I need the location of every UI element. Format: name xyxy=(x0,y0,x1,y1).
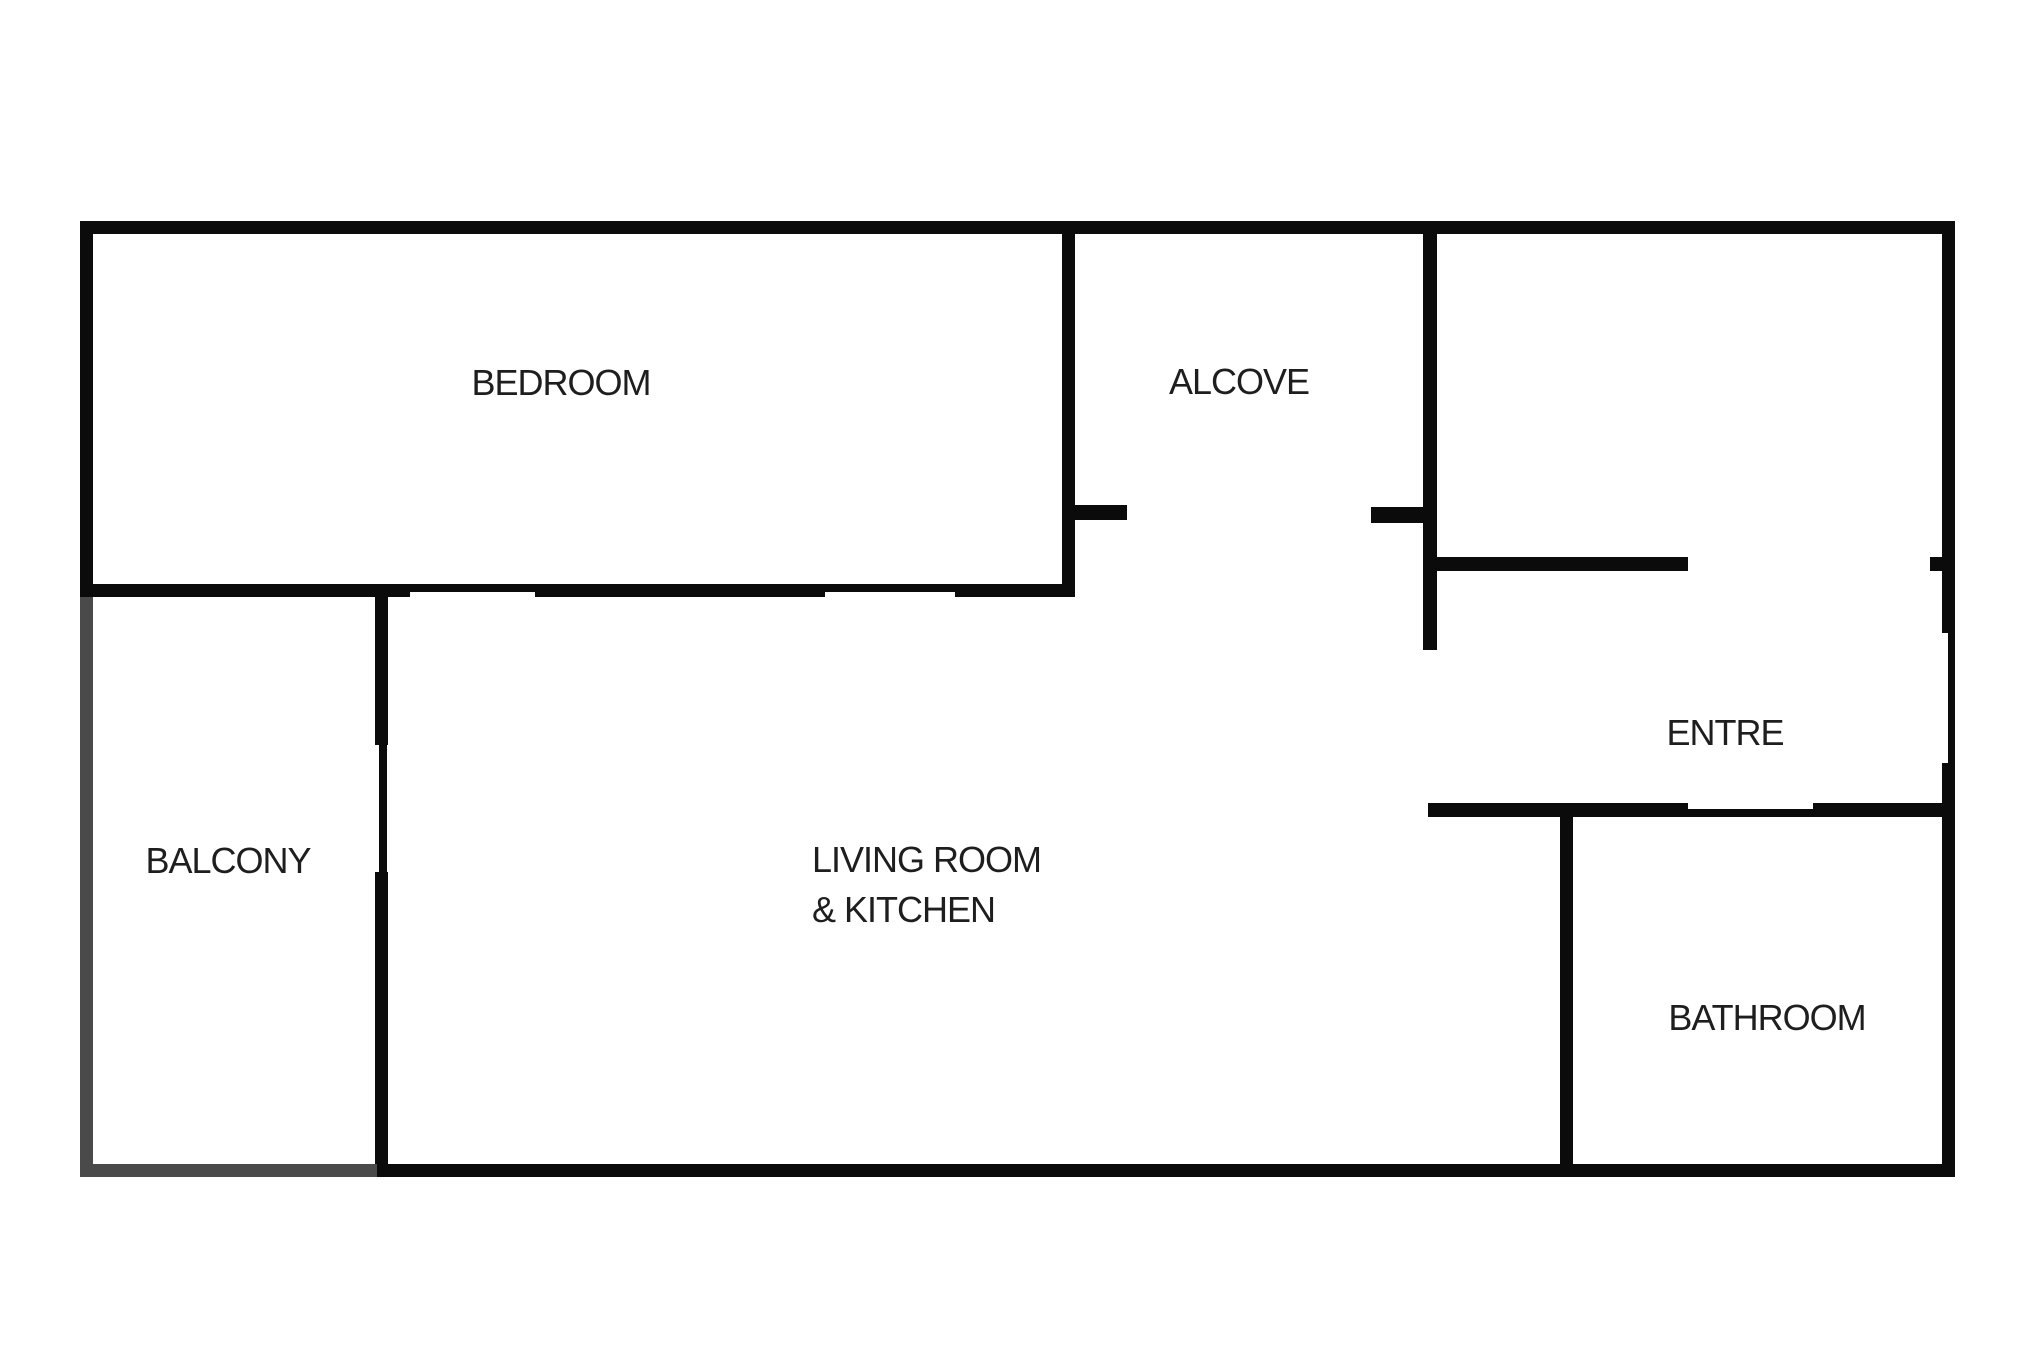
wall-alcove-west-tick xyxy=(1075,505,1127,520)
room-label-entre: ENTRE xyxy=(1666,715,1783,751)
wall-bathroom-north-east xyxy=(1813,803,1942,817)
wall-bedroom-window-west xyxy=(410,584,535,592)
room-label-living-line1: LIVING ROOM xyxy=(812,835,1041,885)
wall-alcove-west xyxy=(1062,233,1075,597)
wall-bathroom-west xyxy=(1560,803,1573,1165)
walls-layer xyxy=(0,0,2043,1365)
wall-entre-north xyxy=(1437,557,1688,571)
wall-outer-left-bedroom xyxy=(80,221,93,597)
wall-bathroom-north-west xyxy=(1428,803,1688,817)
wall-balcony-south-open xyxy=(80,1164,377,1177)
wall-alcove-east-tick xyxy=(1371,507,1423,523)
room-label-balcony: BALCONY xyxy=(145,843,310,879)
room-label-living-line2: & KITCHEN xyxy=(812,885,1041,935)
wall-balcony-door xyxy=(379,745,387,872)
wall-bedroom-window-east xyxy=(825,584,955,592)
wall-balcony-west-open xyxy=(80,597,93,1177)
wall-outer-bottom xyxy=(377,1164,1955,1177)
wall-bedroom-south-a xyxy=(80,584,410,597)
wall-outer-top xyxy=(80,221,1955,234)
wall-balcony-divider-upper xyxy=(375,597,388,745)
wall-outer-right-entry-window xyxy=(1948,633,1955,763)
wall-bedroom-south-b xyxy=(535,584,825,597)
wall-outer-right-lower xyxy=(1942,763,1955,1177)
room-label-living-kitchen: LIVING ROOM & KITCHEN xyxy=(812,835,1041,935)
wall-alcove-east xyxy=(1423,233,1437,650)
room-label-alcove: ALCOVE xyxy=(1169,364,1309,400)
wall-bedroom-south-c xyxy=(955,584,1075,597)
floorplan-canvas: BEDROOM ALCOVE ENTRE BALCONY LIVING ROOM… xyxy=(0,0,2043,1365)
wall-entre-north-nub xyxy=(1930,557,1942,571)
wall-balcony-divider-lower xyxy=(375,872,388,1165)
room-label-bathroom: BATHROOM xyxy=(1668,1000,1865,1036)
wall-bathroom-door xyxy=(1688,809,1813,817)
room-label-bedroom: BEDROOM xyxy=(471,365,650,401)
wall-outer-right-upper xyxy=(1942,221,1955,633)
